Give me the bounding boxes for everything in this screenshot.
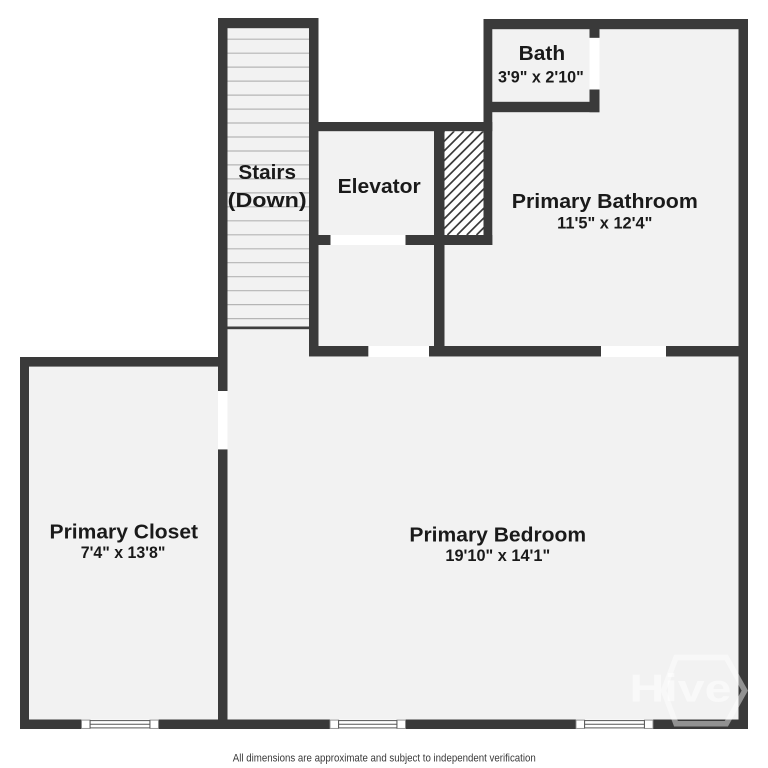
svg-text:Primary Closet: Primary Closet	[50, 522, 199, 544]
svg-text:7'4" x 13'8": 7'4" x 13'8"	[81, 543, 166, 562]
svg-text:Elevator: Elevator	[338, 176, 421, 198]
svg-text:All dimensions are approximate: All dimensions are approximate and subje…	[233, 753, 536, 765]
svg-text:Primary Bedroom: Primary Bedroom	[409, 524, 586, 546]
svg-text:Bath: Bath	[519, 43, 566, 65]
svg-text:19'10" x 14'1": 19'10" x 14'1"	[445, 546, 550, 565]
svg-text:Stairs: Stairs	[238, 162, 296, 184]
svg-text:Primary Bathroom: Primary Bathroom	[512, 191, 698, 213]
svg-text:(Down): (Down)	[228, 190, 307, 212]
svg-text:11'5" x 12'4": 11'5" x 12'4"	[557, 213, 652, 232]
svg-text:Hive: Hive	[630, 668, 732, 711]
svg-text:3'9" x 2'10": 3'9" x 2'10"	[498, 67, 584, 86]
